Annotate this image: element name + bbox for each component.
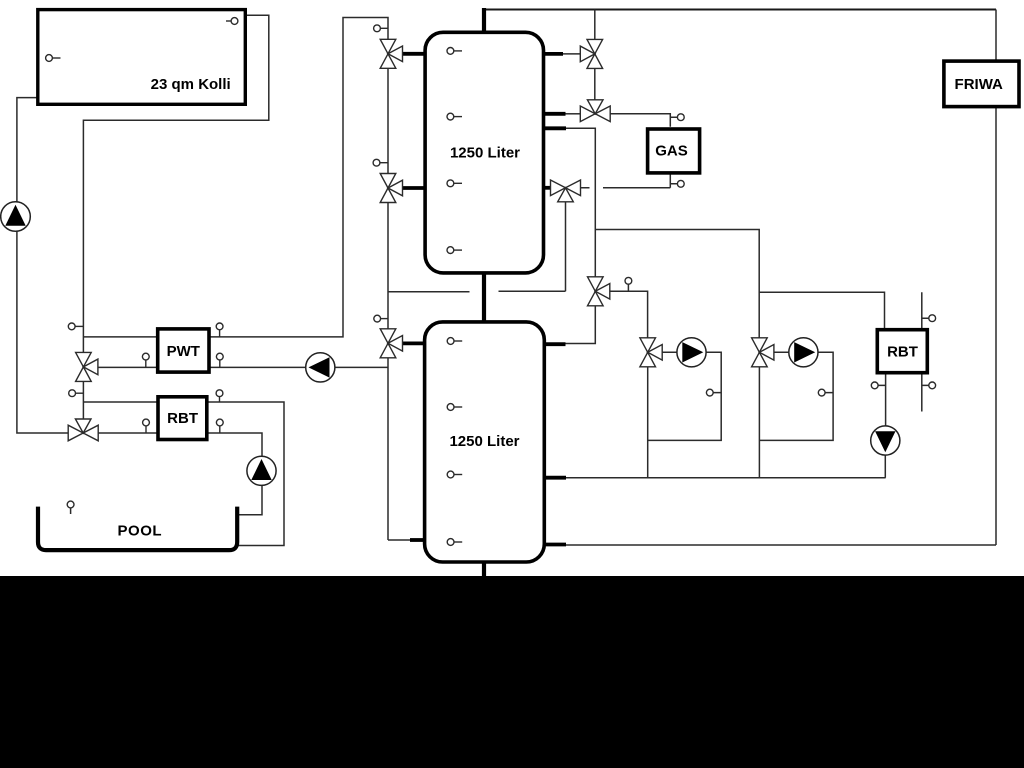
svg-text:POOL: POOL	[118, 523, 163, 540]
svg-text:1250 Liter: 1250 Liter	[450, 145, 520, 162]
svg-text:1250 Liter: 1250 Liter	[449, 433, 519, 450]
svg-text:23 qm Kolli: 23 qm Kolli	[151, 76, 231, 93]
svg-text:RBT: RBT	[167, 410, 198, 427]
svg-text:PWT: PWT	[167, 343, 200, 360]
svg-text:FRIWA: FRIWA	[955, 76, 1003, 93]
svg-text:RBT: RBT	[887, 344, 918, 361]
svg-text:GAS: GAS	[655, 143, 688, 160]
